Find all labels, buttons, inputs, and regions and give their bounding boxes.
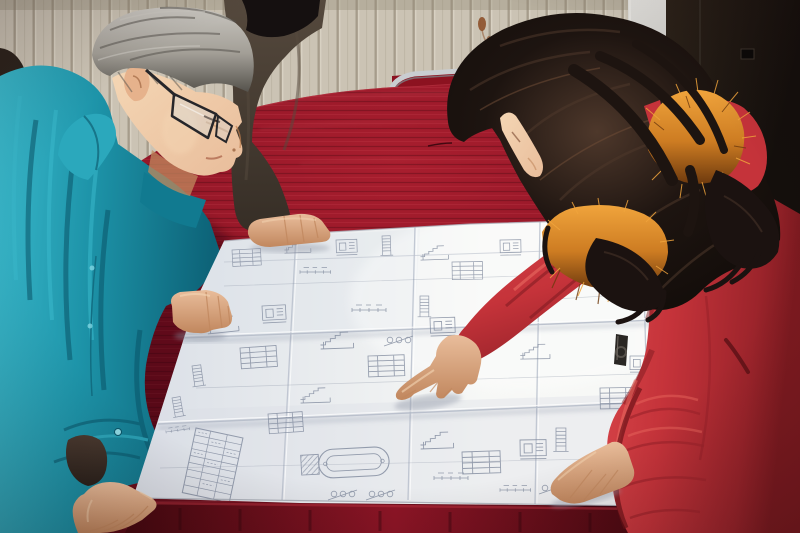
vignette <box>0 0 800 533</box>
photo-blueprint-review: Reviewing an engineering blueprint <box>0 0 800 533</box>
